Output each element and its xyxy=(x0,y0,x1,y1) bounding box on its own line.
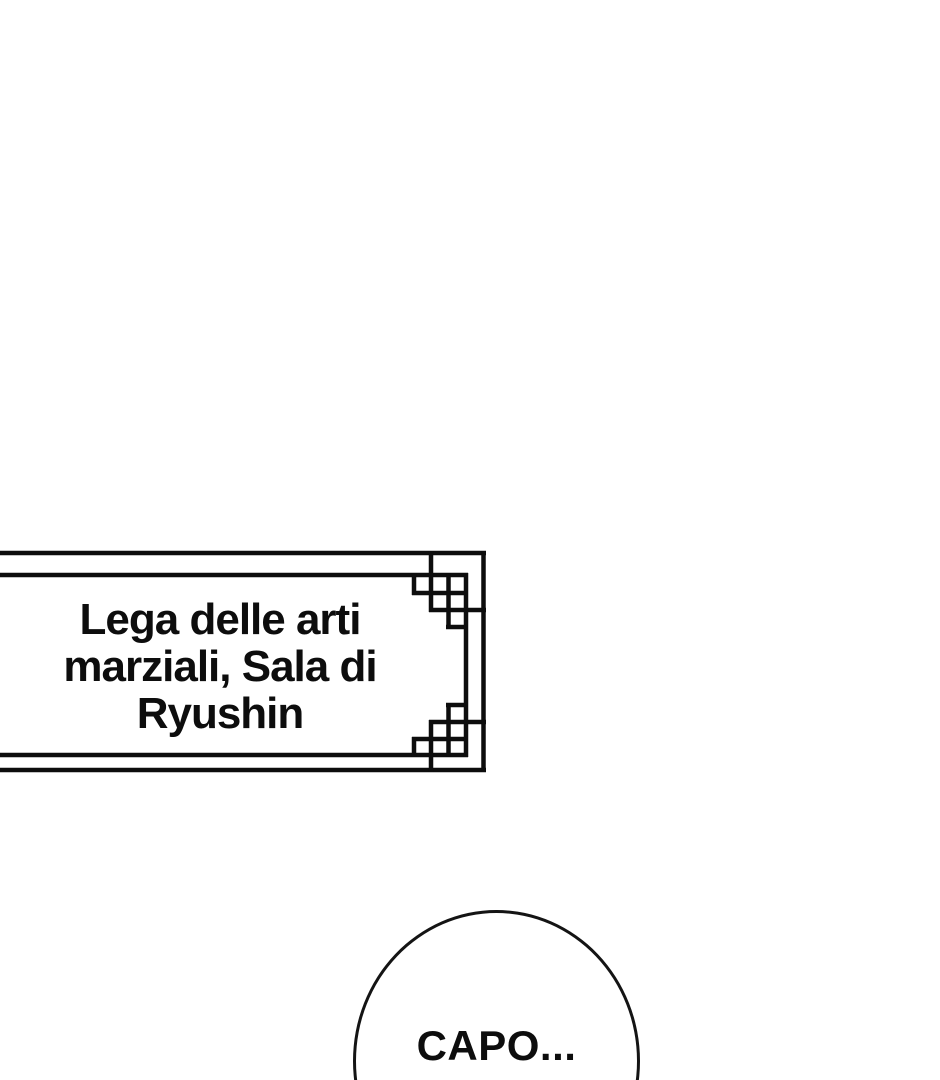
speech-bubble: CAPO... xyxy=(353,910,640,1080)
location-caption-text: Lega delle arti marziali, Sala di Ryushi… xyxy=(0,577,466,755)
comic-page: Lega delle arti marziali, Sala di Ryushi… xyxy=(0,0,940,1080)
speech-bubble-text: CAPO... xyxy=(417,1023,577,1069)
caption-line: Ryushin xyxy=(137,690,304,737)
caption-line: marziali, Sala di xyxy=(63,643,376,690)
caption-line: Lega delle arti xyxy=(80,596,361,643)
location-caption-box: Lega delle arti marziali, Sala di Ryushi… xyxy=(0,545,500,785)
